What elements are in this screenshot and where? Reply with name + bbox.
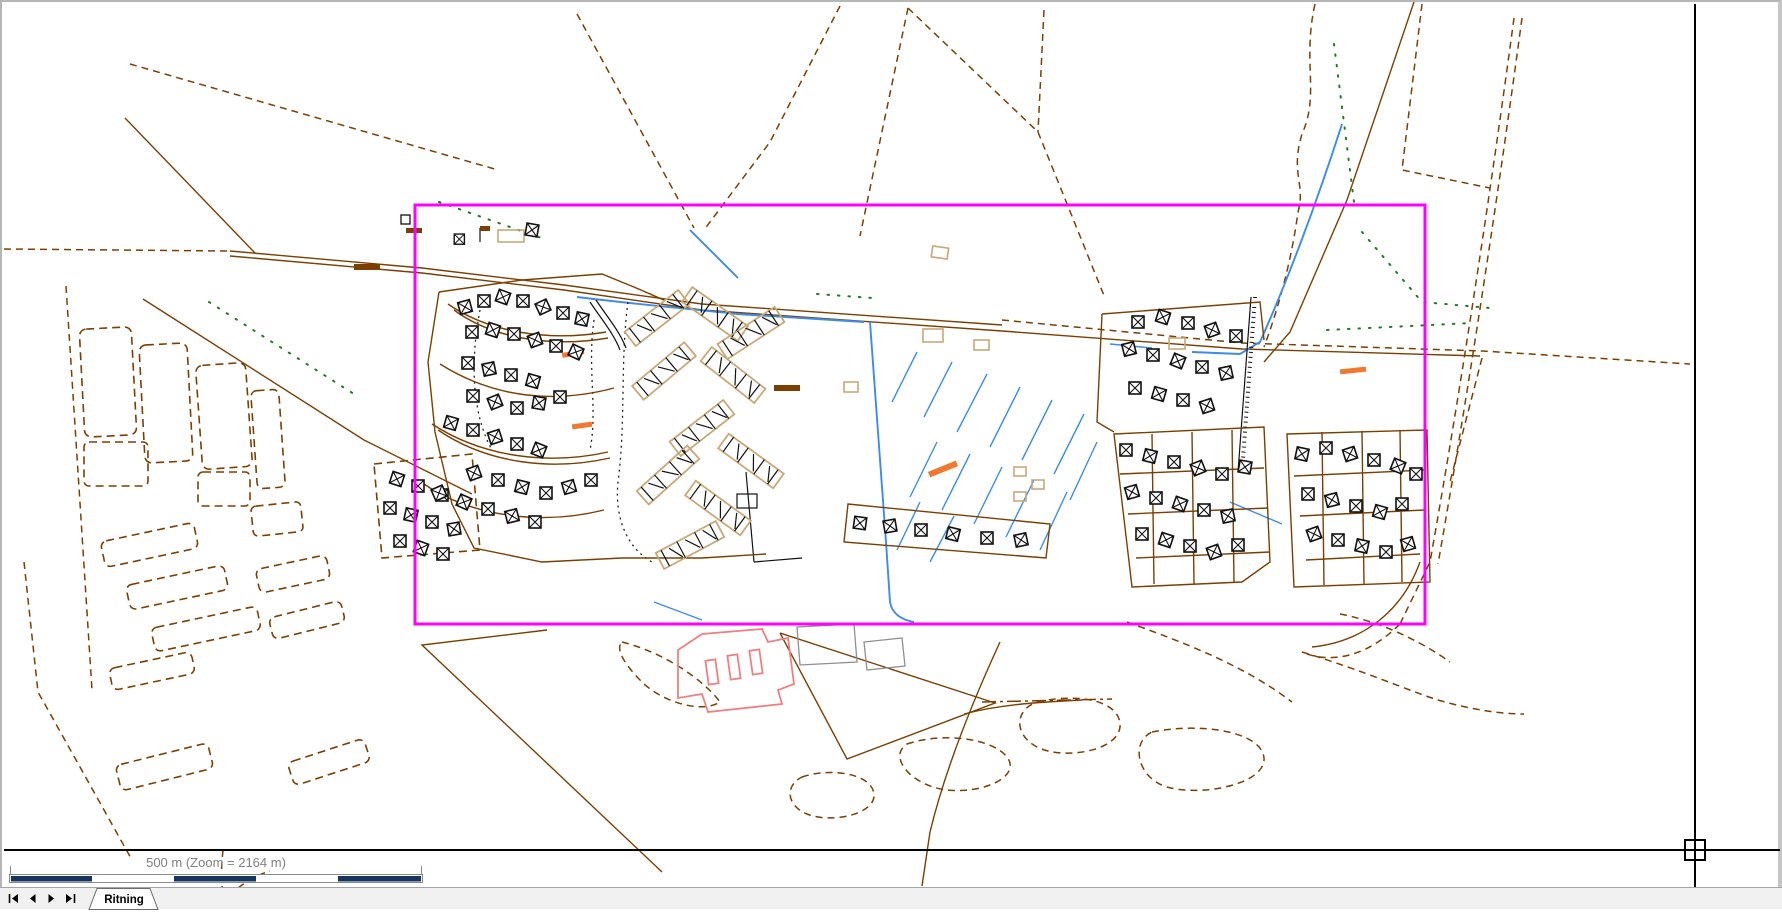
- page-corner-grip[interactable]: [1684, 839, 1706, 861]
- scale-label: 500 m (Zoom = 2164 m): [8, 855, 424, 870]
- zone-apartment-blocks: [625, 287, 785, 569]
- previous-sheet-icon: [27, 893, 38, 904]
- scale-bar: 500 m (Zoom = 2164 m): [8, 855, 424, 885]
- tab-ritning-shape: Ritning: [84, 888, 164, 910]
- tab-ritning-label: Ritning: [104, 894, 144, 906]
- zone-south-strip: [844, 504, 1050, 558]
- first-sheet-button[interactable]: [6, 891, 21, 906]
- layer-black-details: [401, 215, 1255, 670]
- layer-parcel-boundaries: [4, 4, 1690, 887]
- layer-roads: [125, 2, 1480, 886]
- map-canvas[interactable]: 500 m (Zoom = 2164 m): [0, 0, 1782, 887]
- application-window: { "statusbar": { "scale_label": "500 m (…: [0, 0, 1782, 909]
- page-boundary-vertical-line: [1694, 4, 1696, 888]
- next-sheet-button[interactable]: [44, 891, 59, 906]
- sheet-navigation: [6, 891, 78, 906]
- zone-right-residential: [1097, 302, 1430, 587]
- sheet-tab-bar: Ritning: [0, 887, 1782, 909]
- highlighted-building-red: [678, 629, 794, 712]
- last-sheet-button[interactable]: [63, 891, 78, 906]
- page-boundary-horizontal-line: [4, 849, 1780, 851]
- layer-field-strips: [79, 327, 371, 791]
- last-sheet-icon: [65, 893, 76, 904]
- previous-sheet-button[interactable]: [25, 891, 40, 906]
- tab-ritning[interactable]: Ritning: [84, 888, 164, 910]
- next-sheet-icon: [46, 893, 57, 904]
- map-drawing: [2, 2, 1780, 887]
- first-sheet-icon: [8, 893, 19, 904]
